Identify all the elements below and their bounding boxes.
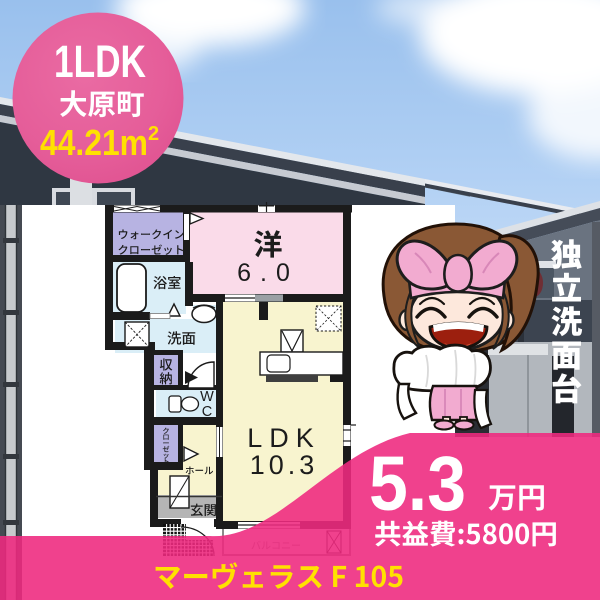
svg-text:C: C [202, 404, 212, 420]
svg-text:6.0: 6.0 [237, 259, 299, 287]
svg-text:10.3: 10.3 [250, 450, 319, 480]
svg-text:LDK: LDK [247, 423, 321, 453]
svg-text:2: 2 [148, 123, 159, 145]
svg-text:1LDK: 1LDK [54, 36, 146, 87]
svg-text:44.21m: 44.21m [40, 122, 148, 163]
svg-text:W: W [200, 389, 214, 405]
svg-text:5.3: 5.3 [369, 441, 466, 527]
